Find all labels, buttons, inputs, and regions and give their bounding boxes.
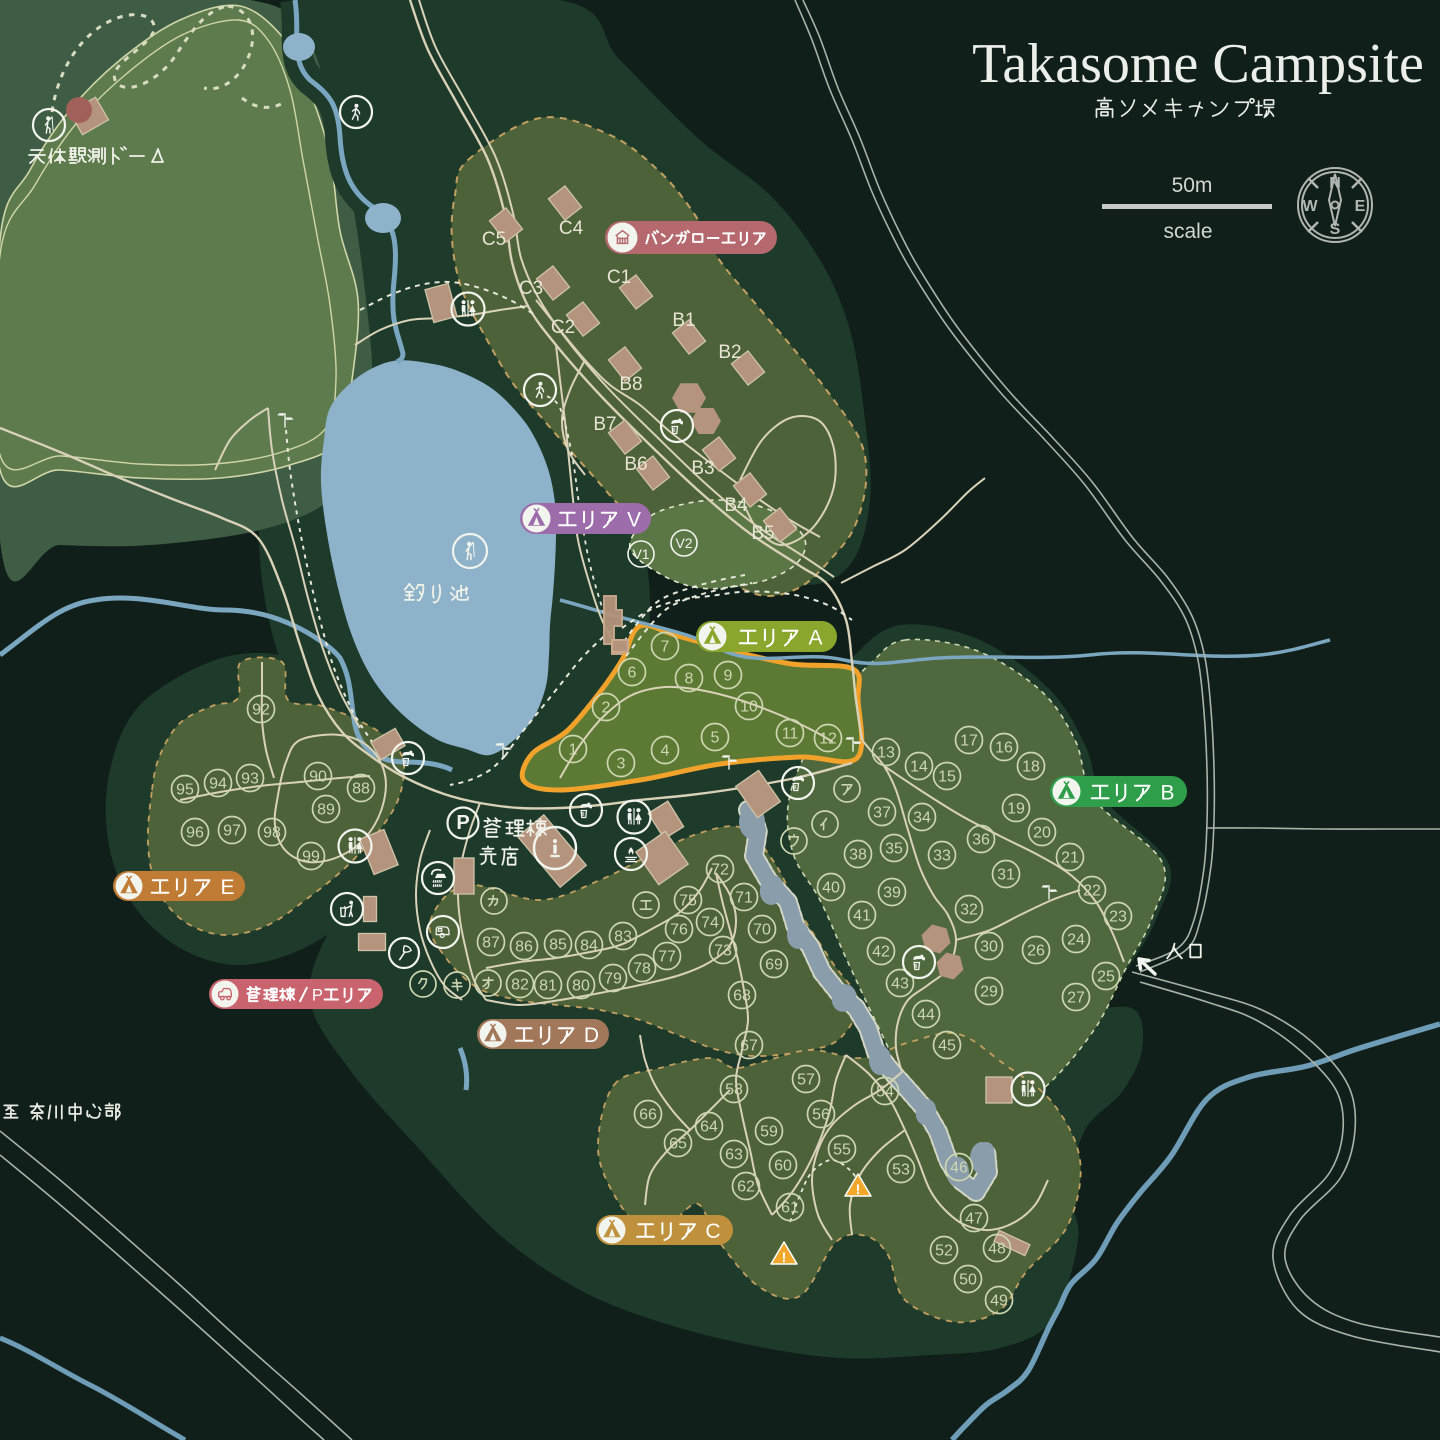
svg-text:67: 67 bbox=[740, 1038, 758, 1055]
svg-text:56: 56 bbox=[812, 1107, 830, 1124]
svg-text:85: 85 bbox=[549, 937, 567, 954]
svg-text:41: 41 bbox=[853, 908, 871, 925]
svg-text:37: 37 bbox=[873, 805, 891, 822]
svg-text:14: 14 bbox=[910, 759, 928, 776]
svg-text:11: 11 bbox=[782, 726, 799, 743]
svg-text:49: 49 bbox=[990, 1293, 1008, 1310]
svg-text:C1: C1 bbox=[607, 267, 631, 288]
svg-text:70: 70 bbox=[753, 922, 771, 939]
svg-text:40: 40 bbox=[822, 880, 840, 897]
svg-text:25: 25 bbox=[1097, 969, 1115, 986]
svg-text:E: E bbox=[220, 876, 234, 899]
svg-text:22: 22 bbox=[1083, 883, 1101, 900]
svg-text:B: B bbox=[1160, 782, 1174, 805]
svg-text:18: 18 bbox=[1022, 759, 1040, 776]
svg-text:23: 23 bbox=[1109, 909, 1127, 926]
svg-text:74: 74 bbox=[701, 915, 719, 932]
svg-text:B1: B1 bbox=[672, 310, 695, 331]
svg-text:24: 24 bbox=[1067, 932, 1085, 949]
svg-text:47: 47 bbox=[965, 1211, 983, 1228]
svg-text:69: 69 bbox=[765, 957, 783, 974]
svg-text:Takasome Campsite: Takasome Campsite bbox=[972, 33, 1424, 95]
svg-text:B5: B5 bbox=[751, 523, 774, 544]
svg-text:66: 66 bbox=[639, 1107, 657, 1124]
svg-text:B6: B6 bbox=[624, 454, 647, 475]
svg-text:10: 10 bbox=[740, 699, 758, 716]
svg-text:30: 30 bbox=[980, 939, 998, 956]
svg-text:65: 65 bbox=[669, 1136, 687, 1153]
svg-text:75: 75 bbox=[679, 893, 697, 910]
svg-text:68: 68 bbox=[733, 988, 751, 1005]
svg-text:1: 1 bbox=[569, 742, 578, 759]
svg-text:17: 17 bbox=[960, 733, 978, 750]
svg-text:45: 45 bbox=[938, 1038, 956, 1055]
svg-text:54: 54 bbox=[876, 1084, 894, 1101]
svg-text:P: P bbox=[456, 812, 469, 834]
svg-text:!: ! bbox=[856, 1181, 861, 1197]
svg-text:38: 38 bbox=[849, 847, 867, 864]
svg-text:59: 59 bbox=[760, 1124, 778, 1141]
svg-text:4: 4 bbox=[661, 743, 670, 760]
svg-text:D: D bbox=[584, 1024, 599, 1047]
svg-text:60: 60 bbox=[774, 1158, 792, 1175]
svg-text:31: 31 bbox=[997, 867, 1015, 884]
svg-text:34: 34 bbox=[913, 810, 931, 827]
svg-text:89: 89 bbox=[317, 802, 335, 819]
svg-text:53: 53 bbox=[892, 1162, 910, 1179]
svg-text:44: 44 bbox=[917, 1007, 935, 1024]
svg-text:9: 9 bbox=[724, 668, 733, 685]
svg-text:V2: V2 bbox=[675, 535, 692, 551]
svg-text:21: 21 bbox=[1061, 850, 1079, 867]
svg-text:12: 12 bbox=[819, 731, 837, 748]
svg-text:92: 92 bbox=[252, 702, 270, 719]
svg-text:58: 58 bbox=[725, 1082, 743, 1099]
svg-text:32: 32 bbox=[960, 902, 978, 919]
svg-text:83: 83 bbox=[614, 929, 632, 946]
svg-text:64: 64 bbox=[700, 1119, 718, 1136]
svg-text:B4: B4 bbox=[724, 495, 748, 516]
svg-text:78: 78 bbox=[633, 961, 651, 978]
svg-text:19: 19 bbox=[1007, 801, 1025, 818]
svg-text:52: 52 bbox=[935, 1243, 953, 1260]
svg-text:13: 13 bbox=[877, 745, 895, 762]
svg-text:26: 26 bbox=[1027, 943, 1045, 960]
svg-text:27: 27 bbox=[1067, 990, 1085, 1007]
svg-text:99: 99 bbox=[302, 849, 320, 866]
svg-text:V1: V1 bbox=[632, 546, 649, 562]
svg-text:B7: B7 bbox=[593, 414, 616, 435]
svg-text:86: 86 bbox=[515, 939, 533, 956]
svg-text:39: 39 bbox=[883, 885, 901, 902]
svg-text:57: 57 bbox=[797, 1072, 815, 1089]
svg-text:46: 46 bbox=[950, 1160, 968, 1177]
svg-text:93: 93 bbox=[241, 771, 259, 788]
svg-text:76: 76 bbox=[670, 922, 688, 939]
svg-text:C4: C4 bbox=[559, 218, 584, 239]
svg-text:15: 15 bbox=[938, 769, 956, 786]
svg-text:33: 33 bbox=[933, 848, 951, 865]
svg-text:2: 2 bbox=[602, 700, 611, 717]
svg-text:6: 6 bbox=[628, 665, 637, 682]
svg-text:50m: 50m bbox=[1172, 174, 1213, 197]
svg-text:B3: B3 bbox=[691, 458, 714, 479]
svg-text:95: 95 bbox=[176, 782, 194, 799]
svg-text:35: 35 bbox=[885, 841, 903, 858]
svg-text:50: 50 bbox=[959, 1272, 977, 1289]
svg-text:A: A bbox=[808, 627, 822, 650]
svg-text:E: E bbox=[1355, 198, 1366, 215]
svg-text:79: 79 bbox=[604, 971, 622, 988]
svg-text:82: 82 bbox=[511, 977, 529, 994]
svg-text:B2: B2 bbox=[718, 342, 741, 363]
svg-text:81: 81 bbox=[539, 978, 557, 995]
svg-text:!: ! bbox=[782, 1249, 787, 1265]
svg-text:16: 16 bbox=[995, 740, 1013, 757]
svg-text:7: 7 bbox=[661, 639, 670, 656]
svg-text:C2: C2 bbox=[551, 317, 575, 338]
svg-text:V: V bbox=[627, 509, 641, 532]
svg-text:97: 97 bbox=[223, 823, 241, 840]
svg-text:55: 55 bbox=[833, 1142, 851, 1159]
svg-text:C: C bbox=[705, 1220, 720, 1243]
svg-text:77: 77 bbox=[658, 949, 676, 966]
svg-text:73: 73 bbox=[714, 943, 732, 960]
svg-text:W: W bbox=[1302, 198, 1318, 215]
svg-text:98: 98 bbox=[263, 825, 281, 842]
svg-text:C3: C3 bbox=[519, 278, 543, 299]
svg-text:62: 62 bbox=[737, 1179, 755, 1196]
svg-text:72: 72 bbox=[711, 862, 729, 879]
svg-text:43: 43 bbox=[891, 976, 909, 993]
svg-text:61: 61 bbox=[781, 1200, 799, 1217]
svg-text:36: 36 bbox=[972, 832, 990, 849]
svg-text:80: 80 bbox=[572, 978, 590, 995]
svg-text:3: 3 bbox=[617, 756, 626, 773]
svg-text:63: 63 bbox=[725, 1147, 743, 1164]
svg-text:8: 8 bbox=[685, 671, 694, 688]
svg-text:29: 29 bbox=[980, 984, 998, 1001]
svg-text:5: 5 bbox=[711, 730, 720, 747]
svg-text:96: 96 bbox=[186, 825, 204, 842]
svg-text:88: 88 bbox=[352, 781, 370, 798]
svg-text:71: 71 bbox=[735, 890, 753, 907]
svg-text:90: 90 bbox=[309, 769, 327, 786]
svg-text:48: 48 bbox=[988, 1241, 1006, 1258]
svg-text:P: P bbox=[312, 986, 323, 1005]
svg-text:42: 42 bbox=[872, 944, 890, 961]
svg-text:scale: scale bbox=[1163, 220, 1212, 243]
svg-text:87: 87 bbox=[482, 935, 500, 952]
svg-text:C5: C5 bbox=[482, 229, 506, 250]
svg-text:84: 84 bbox=[580, 938, 598, 955]
svg-text:20: 20 bbox=[1033, 825, 1051, 842]
svg-text:B8: B8 bbox=[619, 374, 642, 395]
svg-text:94: 94 bbox=[209, 776, 227, 793]
